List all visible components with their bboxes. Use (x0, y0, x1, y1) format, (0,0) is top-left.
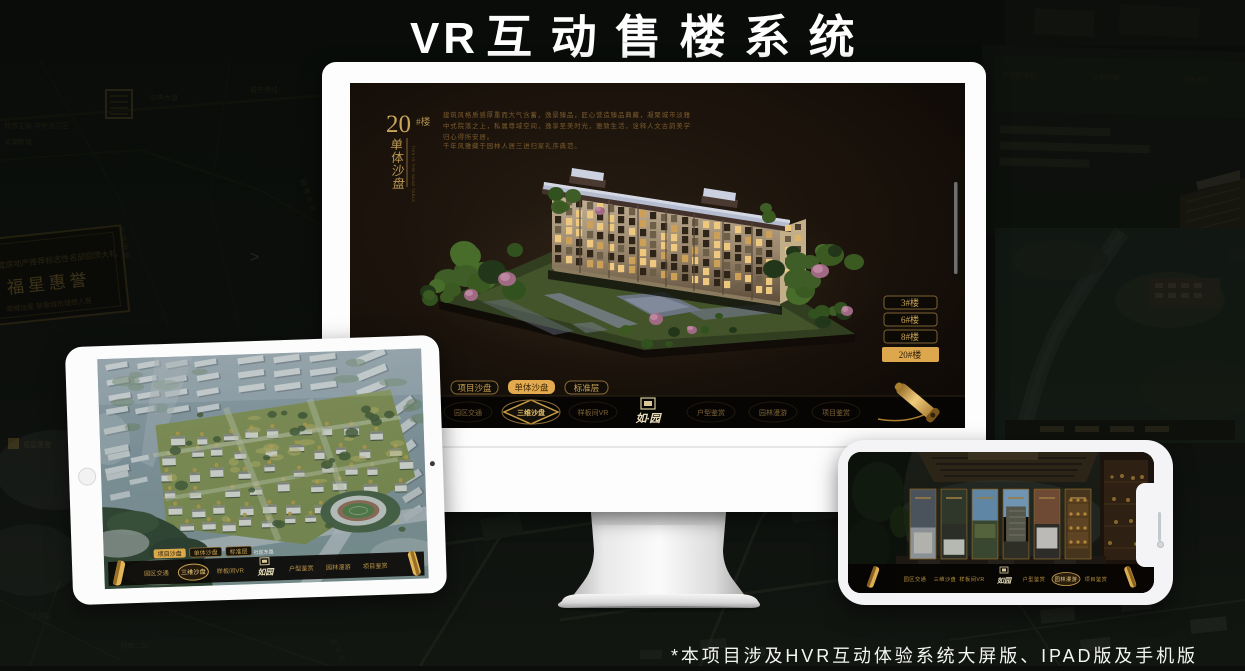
svg-text:盘: 盘 (392, 176, 406, 191)
svg-text:三维沙盘: 三维沙盘 (517, 408, 545, 417)
svg-text:如·园: 如·园 (636, 412, 663, 425)
svg-text:户型鉴赏: 户型鉴赏 (289, 564, 314, 573)
svg-text:园林漫游: 园林漫游 (326, 563, 351, 572)
svg-text:20: 20 (386, 111, 411, 138)
svg-text:6#楼: 6#楼 (901, 314, 919, 325)
svg-text:归心得所安居。: 归心得所安居。 (443, 132, 494, 141)
svg-text:样板间VR: 样板间VR (217, 566, 245, 575)
svg-text:项目鉴赏: 项目鉴赏 (1085, 575, 1108, 583)
svg-text:千年风雅藏于园林人居三进归家礼序典范。: 千年风雅藏于园林人居三进归家礼序典范。 (443, 141, 582, 150)
svg-text:标准层: 标准层 (574, 383, 600, 393)
svg-text:中式院落之上，私属尊域空间，逸享至美时光，雅致生活，诠释人文: 中式院落之上，私属尊域空间，逸享至美时光，雅致生活，诠释人文古韵美学 (443, 121, 691, 130)
svg-text:三维沙盘: 三维沙盘 (934, 575, 957, 583)
svg-text:20#楼: 20#楼 (899, 349, 922, 360)
svg-text:沙: 沙 (391, 164, 405, 178)
svg-text:体: 体 (390, 151, 404, 165)
svg-text:城东快线: 城东快线 (250, 85, 278, 94)
svg-text:园区交通: 园区交通 (144, 569, 169, 578)
svg-text:>: > (250, 249, 259, 266)
svg-text:THIS IS THE SAND TABLE: THIS IS THE SAND TABLE (411, 145, 416, 202)
svg-text:样板间VR: 样板间VR (959, 575, 984, 583)
svg-text:园林漫游: 园林漫游 (759, 408, 787, 417)
svg-text:单体沙盘: 单体沙盘 (514, 383, 549, 393)
svg-text:如园: 如园 (257, 567, 275, 577)
svg-text:项目鉴赏: 项目鉴赏 (822, 408, 850, 417)
svg-text:园区交通: 园区交通 (454, 408, 482, 417)
svg-text:三维沙盘: 三维沙盘 (181, 568, 206, 577)
svg-text:城南二路: 城南二路 (120, 641, 148, 650)
svg-text:建筑风格质感厚重而大气含蓄，逸景臻品，匠心营造臻品典藏，凝聚: 建筑风格质感厚重而大气含蓄，逸景臻品，匠心营造臻品典藏，凝聚城市淡雅 (443, 110, 691, 119)
svg-text:户型鉴赏: 户型鉴赏 (1023, 575, 1046, 583)
svg-text:8#楼: 8#楼 (901, 331, 919, 342)
svg-text:#楼: #楼 (416, 116, 431, 128)
svg-text:社区东路: 社区东路 (254, 548, 274, 556)
svg-text:滨湖新城: 滨湖新城 (4, 137, 32, 146)
svg-text:户型鉴赏: 户型鉴赏 (697, 408, 725, 417)
svg-text:单: 单 (390, 138, 404, 152)
svg-text:中央大道: 中央大道 (150, 93, 178, 102)
svg-text:项目沙盘: 项目沙盘 (457, 383, 492, 393)
svg-text:园林漫游: 园林漫游 (1055, 575, 1078, 583)
svg-text:园区交通: 园区交通 (904, 575, 927, 583)
svg-text:如园: 如园 (997, 576, 1013, 585)
svg-text:城市主脉 中央活力区: 城市主脉 中央活力区 (4, 121, 69, 130)
svg-text:样板间VR: 样板间VR (578, 408, 609, 417)
svg-text:3#楼: 3#楼 (901, 297, 919, 308)
svg-text:项目鉴赏: 项目鉴赏 (363, 562, 388, 571)
